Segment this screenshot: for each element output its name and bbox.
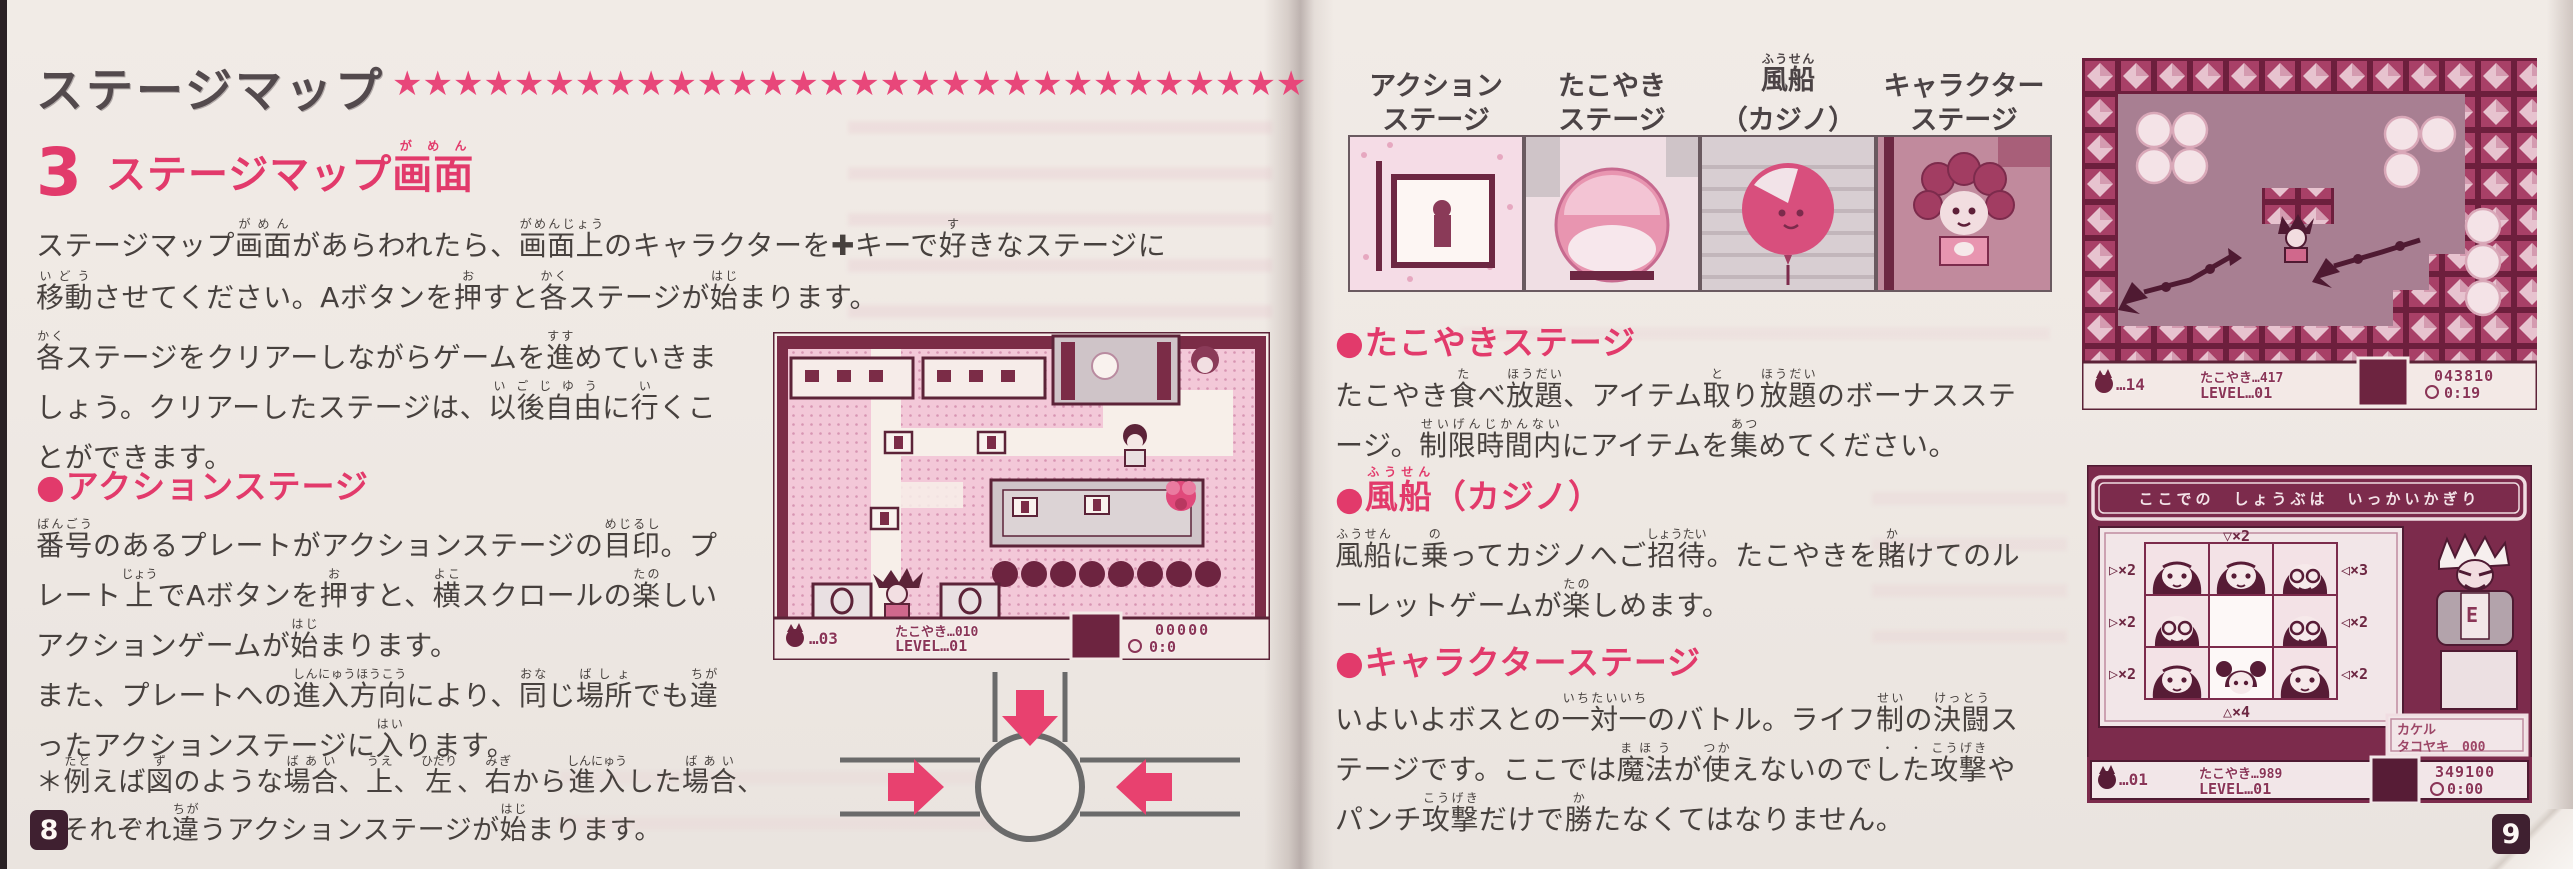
arrow-right (888, 759, 944, 815)
page-title: ステージマップ (36, 52, 385, 121)
hud-time: 0:0 (1149, 638, 1176, 656)
body-line: ージ。制限時間内せいげんじかんないにアイテムを集あつめてください。 (1335, 410, 1957, 460)
body-line: レート上じょうでAボタンを押おすと、横よこスクロールの楽たのしい (36, 560, 718, 610)
body-line: パンチ攻撃こうげきだけで勝かたなくてはなりません。 (1335, 784, 1904, 834)
bet-line-2: タコヤキ 000 (2397, 736, 2485, 755)
scan-right-edge (2547, 0, 2573, 869)
mult-bottom: △×4 (2223, 703, 2250, 721)
thumb-label-action-1: アクション (1348, 64, 1524, 100)
hud-time: 0:00 (2447, 780, 2483, 798)
entry-direction-diagram (830, 672, 1250, 862)
block-stage-screenshot: …14 たこやき…417 LEVEL…01 043810 0:19 (2082, 58, 2537, 410)
thumb-action-stage (1348, 135, 1524, 292)
thumb-label-balloon-1: 風船ふうせん (1700, 58, 1876, 94)
entry-direction-art (830, 672, 1250, 862)
takoyaki-stage-heading: ●たこやきステージ (1335, 308, 1636, 364)
hud-level: LEVEL…01 (895, 637, 967, 655)
hud-lives: …14 (2116, 375, 2145, 394)
body-line: 各かくステージをクリアーしながらゲームを進すすめていきま (36, 322, 717, 372)
hud-level: LEVEL…01 (2199, 780, 2271, 798)
thumb-takoyaki-art (1526, 137, 1698, 290)
thumb-character-art (1878, 137, 2050, 290)
body-line: 風船ふうせんに乗のってカジノへご招待しょうたい。たこやきを賭かけてのル (1335, 520, 2020, 570)
thumb-label-character-1: キャラクター (1876, 64, 2052, 100)
footnote-line: ＊例たとえば図ずのような場合ばあい、上うえ、左ひだり、右みぎから進入しんにゅうし… (36, 748, 765, 796)
thumb-action-art (1350, 137, 1522, 290)
thumb-label-takoyaki-2: ステージ (1524, 98, 1700, 134)
body-line: 移動いどうさせてください。Aボタンを押おすと各かくステージが始はじまります。 (36, 262, 878, 312)
body-line: ステージマップ画面がめんがあらわれたら、画面上がめんじょうのキャラクターを✚キー… (36, 210, 1166, 260)
thumb-balloon-art (1702, 137, 1874, 290)
page-number-right: 9 (2492, 814, 2530, 854)
mult-right-2: ◁×2 (2341, 613, 2368, 631)
section-number: 3 (36, 140, 82, 206)
balloon-stage-heading: ●風船ふうせん（カジノ） (1335, 462, 1602, 518)
scan-left-edge (0, 0, 7, 869)
hud-level: LEVEL…01 (2200, 384, 2272, 402)
thumb-label-character-2: ステージ (1876, 98, 2052, 134)
mult-right-1: ◁×3 (2341, 561, 2368, 579)
hud-lives: …03 (809, 629, 838, 648)
block-stage-art (2082, 58, 2537, 410)
body-line: 番号ばんごうのあるプレートがアクションステージの目印めじるし。プ (36, 510, 718, 560)
arrow-left (1116, 759, 1172, 815)
section-heading: ステージマップ画面がめん (106, 134, 474, 200)
hud-score: 043810 (2434, 367, 2494, 385)
thumb-label-balloon-2: （カジノ） (1700, 98, 1876, 134)
hud-lives: …01 (2119, 770, 2148, 789)
mult-top: ▽×2 (2223, 527, 2250, 545)
stage-map-screenshot: …03 たこやき…010 LEVEL…01 00000 0:0 (773, 332, 1270, 660)
body-line: ーレットゲームが楽たのしめます。 (1335, 570, 1730, 620)
thumb-takoyaki-stage (1524, 135, 1700, 292)
center-fold-shadow (1264, 0, 1334, 869)
dealer-shirt-letter: E (2466, 603, 2478, 627)
body-line: また、プレートへの進入方向しんにゅうほうこうにより、同おなじ場所ばしょでも違ちが (36, 660, 718, 710)
thumb-label-action-2: ステージ (1348, 98, 1524, 134)
action-stage-heading: ●アクションステージ (36, 452, 369, 508)
mult-left-1: ▷×2 (2109, 561, 2136, 579)
thumb-label-takoyaki-1: たこやき (1524, 64, 1700, 100)
mult-left-2: ▷×2 (2109, 613, 2136, 631)
mult-left-3: ▷×2 (2109, 665, 2136, 683)
hud-time: 0:19 (2444, 384, 2480, 402)
body-line: アクションゲームが始はじまります。 (36, 610, 458, 660)
character-stage-heading: ●キャラクターステージ (1335, 628, 1701, 684)
body-line: テージです。ここでは魔法まほうが使つかえないのでした・・攻撃こうげきや (1335, 734, 2016, 784)
footnote-line: それぞれ違ちがうアクションステージが始はじまります。 (62, 796, 662, 844)
page-number-left: 8 (30, 810, 68, 850)
manual-spread: ステージマップ ★★★★★★★★★★★★★★★★★★★★★★★★★★★★★★ 3… (0, 0, 2573, 869)
casino-banner: ここでの しょうぶは いっかいかぎり (2087, 488, 2532, 509)
mult-right-3: ◁×2 (2341, 665, 2368, 683)
thumb-balloon-stage (1700, 135, 1876, 292)
star-divider: ★★★★★★★★★★★★★★★★★★★★★★★★★★★★★★ (392, 64, 1306, 104)
casino-screenshot: ここでの しょうぶは いっかいかぎり ▽×2 ▷×2 ▷×2 ▷×2 ◁×3 ◁… (2087, 465, 2532, 803)
hud-score: 349100 (2435, 763, 2495, 781)
body-line: たこやき食たべ放題ほうだい、アイテム取とり放題ほうだいのボーナスステ (1335, 360, 2016, 410)
stage-map-art (773, 332, 1270, 660)
body-line: いよいよボスとの一対一いちたいいちのバトル。ライフ制せいの決闘けっとうス (1335, 684, 2019, 734)
body-line: しょう。クリアーしたステージは、以後自由いごじゆうに行いくこ (36, 372, 716, 422)
thumb-character-stage (1876, 135, 2052, 292)
hud-score: 00000 (1155, 621, 1210, 639)
